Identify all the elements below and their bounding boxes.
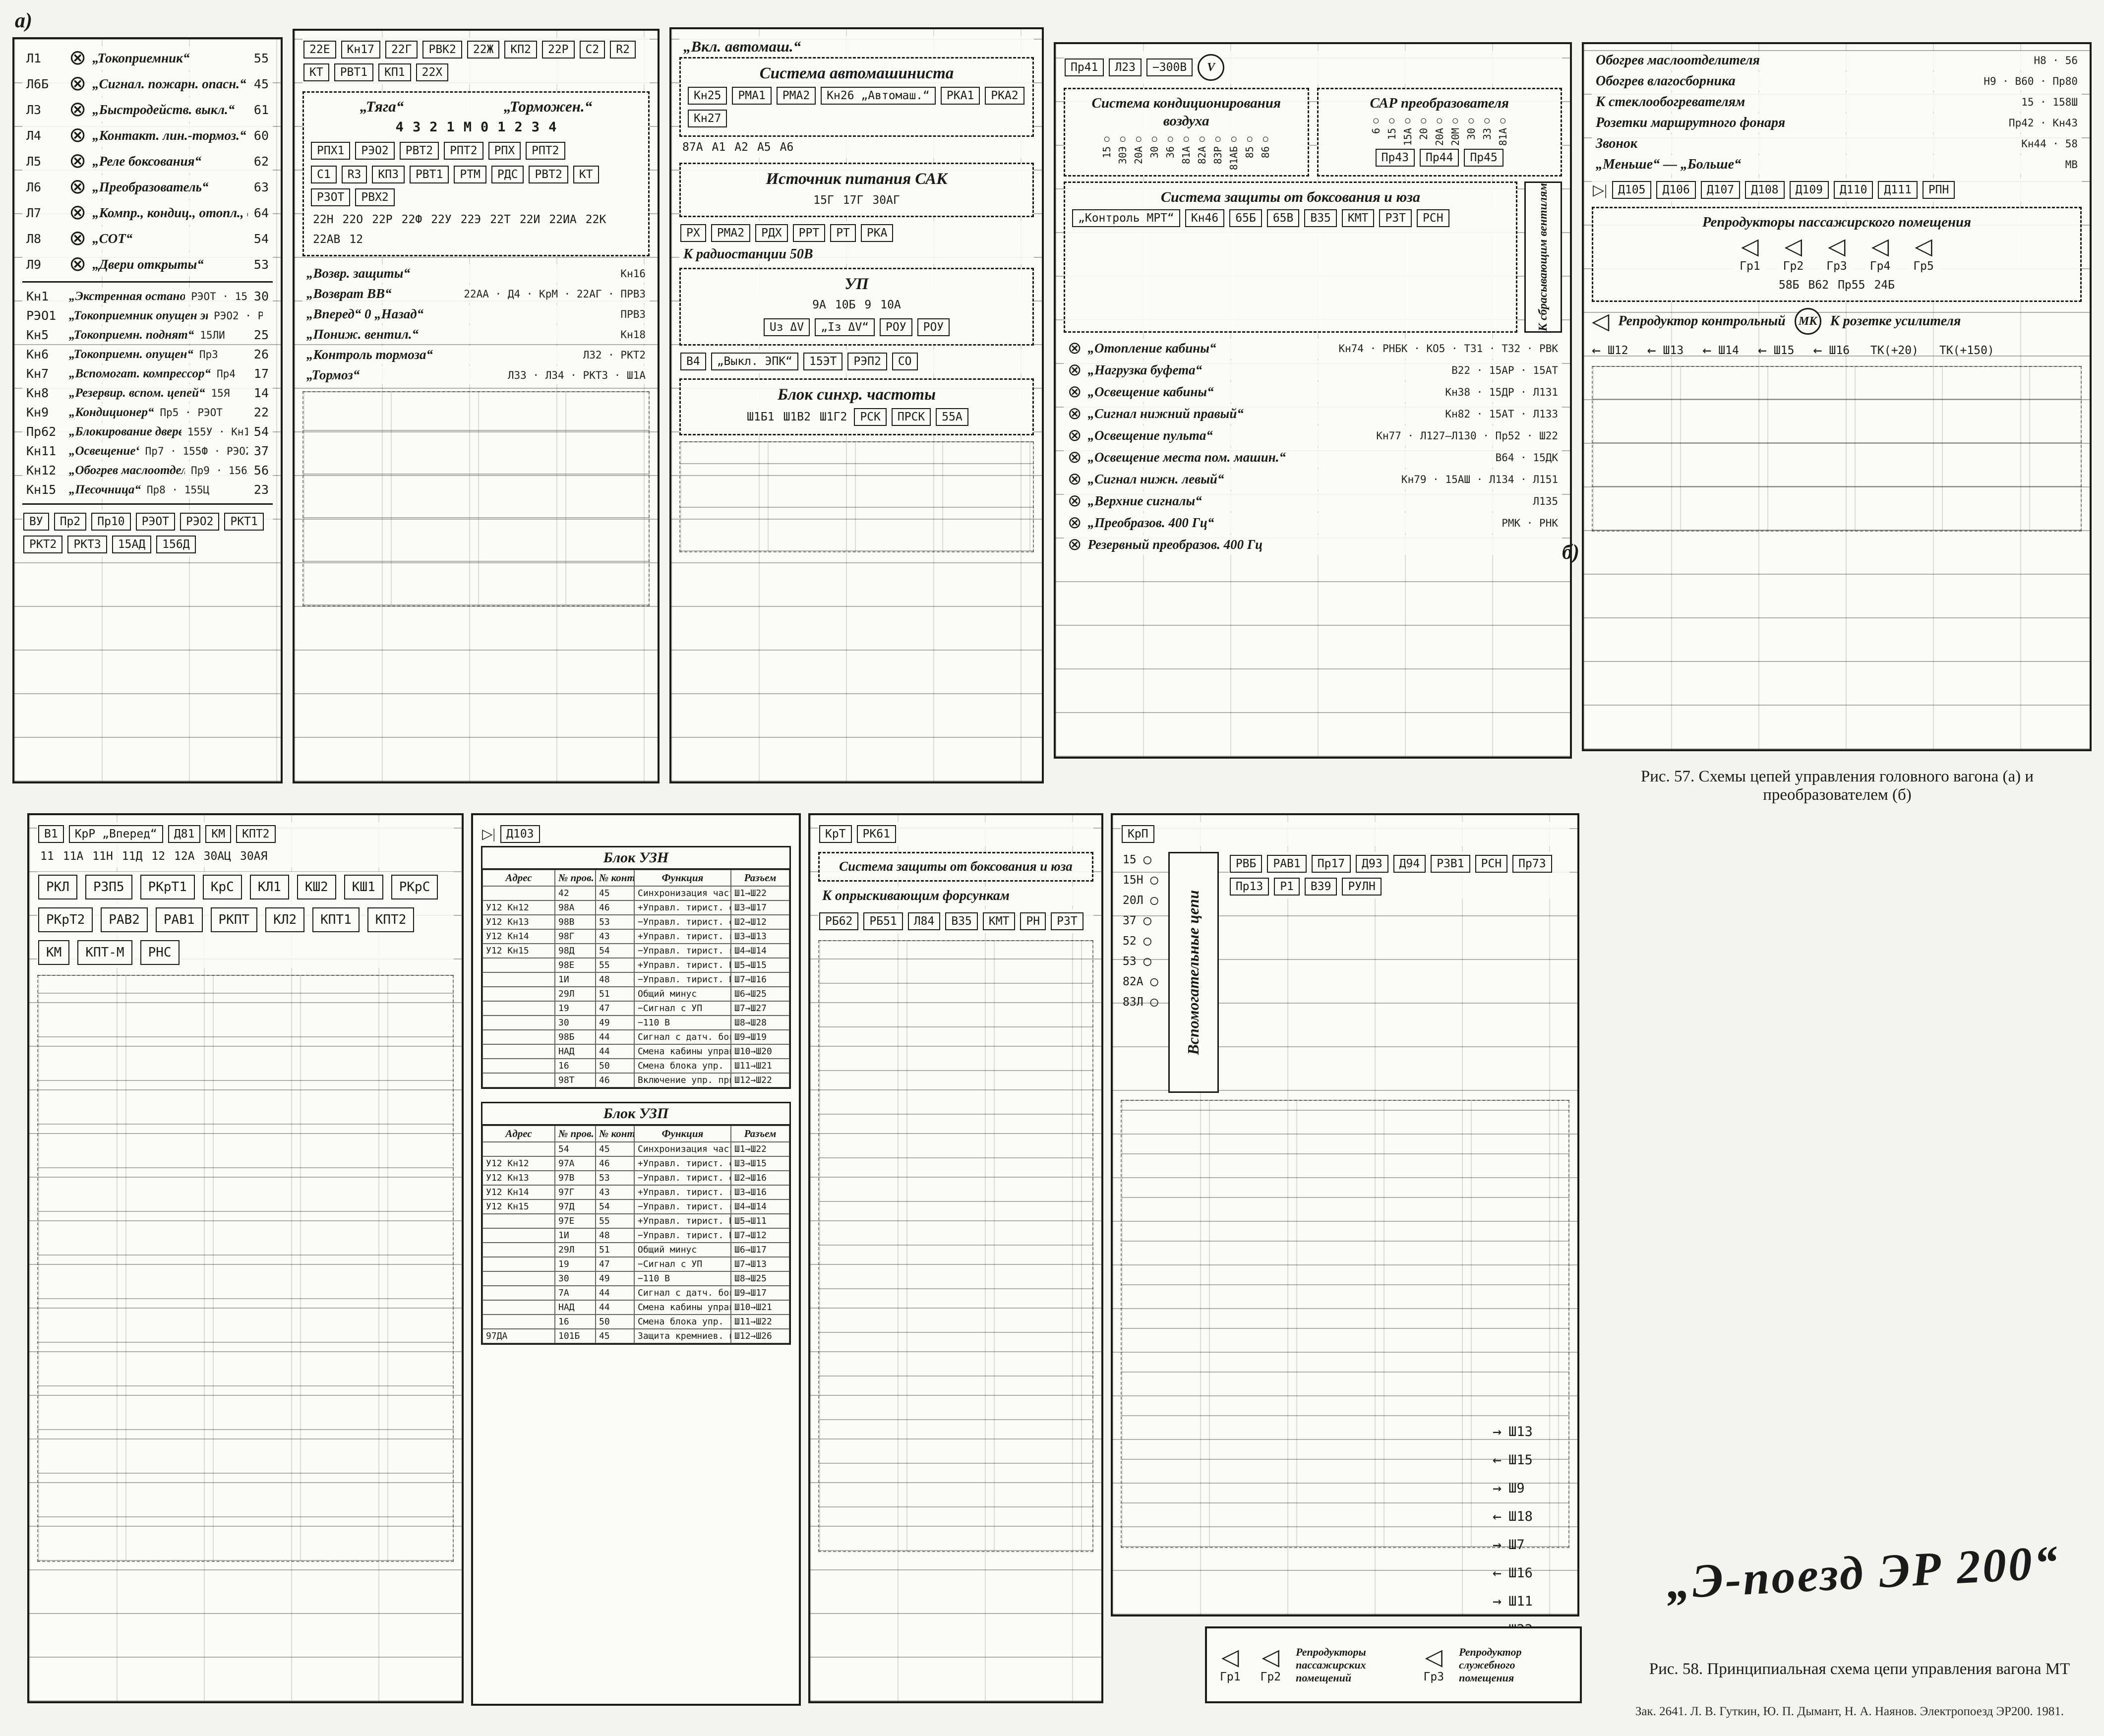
terminal: ○30Э	[1117, 133, 1129, 170]
component-chip: R3	[342, 166, 367, 183]
component-chip: Кн17	[341, 41, 380, 59]
table-cell: Ш7→Ш16	[731, 972, 789, 987]
table-cell: 29Л	[555, 1243, 596, 1257]
automation-title: Система автомашиниста	[687, 63, 1026, 84]
component-chip: РКТ3	[67, 536, 107, 553]
lamp-icon: ⊗	[1068, 515, 1082, 532]
table-cell	[482, 1001, 555, 1016]
wire-tag: 22Э	[459, 212, 483, 227]
table-cell: 30	[555, 1271, 596, 1286]
speakers-group2-title: Репродуктор служебного помещения	[1459, 1646, 1572, 1684]
table-cell: Ш9→Ш17	[731, 1286, 789, 1300]
component-chip: СО	[892, 353, 918, 370]
table-cell: 53	[596, 915, 634, 929]
table-cell	[482, 1315, 555, 1329]
contact-chip: РЭО2	[355, 142, 394, 160]
wire-tag: 11Д	[120, 849, 145, 864]
relay-chip: КШ1	[344, 875, 383, 899]
terminal-dot: ○	[1404, 115, 1412, 127]
table-cell: 48	[596, 1228, 634, 1243]
arrow-icon: ←	[1813, 342, 1822, 359]
terminal: ○6	[1370, 115, 1382, 146]
controller-position: 3	[411, 119, 422, 136]
relay-chip: РАВ2	[101, 907, 148, 932]
table-cell: У12 Кн14	[482, 1185, 555, 1199]
terminal-dot: ○	[1452, 115, 1459, 127]
diode-chip: Д109	[1790, 181, 1829, 199]
table-cell: У12 Кн14	[482, 929, 555, 944]
conditioning-box: Система кондиционирования воздуха ○15 ○3…	[1064, 88, 1309, 177]
component-chip: РХ	[680, 224, 706, 242]
fuse-chip: Пр43	[1376, 149, 1415, 167]
table-cell: Ш4→Ш14	[731, 944, 789, 958]
table-cell: 50	[596, 1315, 634, 1329]
table-cell: 98Г	[555, 929, 596, 944]
wire-tag: 12	[347, 232, 365, 247]
component-chip: С1	[311, 166, 337, 183]
mt-speakers: ◁ Гр1 ◁ Гр2 Репродукторы пассажирских по…	[1205, 1626, 1582, 1703]
table-cell: −Управл. тирист. гаш.	[634, 1199, 731, 1214]
table-cell: −Сигнал с УП	[634, 1257, 731, 1271]
table-cell: Ш4→Ш14	[731, 1199, 789, 1214]
switch-row: Кн9 „Кондиционер“ Пр5 · РЭОТ 22	[22, 404, 273, 421]
table-cell: Смена блока упр. (рез.)	[634, 1315, 731, 1329]
table-cell: 49	[596, 1016, 634, 1030]
lamp-icon: ⊗	[69, 99, 86, 120]
wire-tag: 24Б	[1872, 278, 1897, 293]
relay-chip: РЗП5	[85, 875, 132, 899]
lamp-icon: ⊗	[69, 228, 86, 249]
terminal: ○15	[1386, 115, 1398, 146]
wire-tag: 22Р	[370, 212, 395, 227]
relay-chip: КПТ2	[367, 907, 415, 932]
wire-tags: 11 11А 11Н 11Д 12 12А 30АЦ 30АЯ	[37, 846, 454, 867]
lamp-row: Л4 ⊗ „Контакт. лин.-тормоз.“ 60	[22, 123, 273, 147]
component-chip: 22Е	[303, 41, 336, 59]
switch-row: Пр62 „Блокирование дверей“ 155У · Кн10 5…	[22, 423, 273, 440]
wire-tag: А6	[778, 140, 796, 155]
speaker: ◁ Гр4	[1865, 234, 1896, 275]
component-chip: 15ЭТ	[803, 353, 842, 370]
lamp-row: Л7 ⊗ „Компр., кондиц., отопл., вентиляц.…	[22, 201, 273, 225]
terminal-row: 53○	[1121, 954, 1158, 969]
circuit-row: „Возвр. защиты“ Кн16	[302, 264, 650, 283]
component-chip: 22Г	[385, 41, 418, 59]
terminal-dot: ○	[1436, 115, 1443, 127]
table-cell: 97А	[555, 1156, 596, 1171]
table-cell: Ш2→Ш16	[731, 1171, 789, 1185]
terminal-dot: ○	[1500, 115, 1507, 127]
contact-chip: РПХ	[488, 142, 521, 160]
diode-chip: Д111	[1878, 181, 1917, 199]
braking-title: „Торможен.“	[504, 98, 593, 116]
table-cell: +Управл. тирист. гаш.	[634, 1185, 731, 1199]
speakers-group1-title: Репродукторы пассажирских помещений	[1296, 1646, 1403, 1684]
table-cell: НАД	[555, 1044, 596, 1059]
lamp-row: Л5 ⊗ „Реле боксования“ 62	[22, 149, 273, 173]
relay-fuse-chips: ВУ Пр2 Пр10 РЭОТ РЭО2 РКТ1 РКТ2 РКТ3 15А…	[22, 510, 273, 556]
table2: Адрес № пров. № конт. Функция Разъем 54 …	[481, 1124, 791, 1345]
contact-chip: РВТ2	[400, 142, 439, 160]
wire-tag: 22ИА	[547, 212, 578, 227]
relay-chip: КМ	[38, 940, 69, 965]
table-cell: У12 Кн13	[482, 1171, 555, 1185]
component-chip: РКА	[861, 224, 894, 242]
table-cell: 19	[555, 1001, 596, 1016]
wire-tag: 58Б	[1777, 278, 1802, 293]
terminal-dot: ○	[1199, 133, 1206, 145]
component-chip: Л23	[1109, 59, 1142, 76]
terminal-dot: ○	[1246, 133, 1254, 145]
panel-traction-relays: В1 КрР „Вперед“ Д81 КМ КПТ2 11 11А 11Н 1…	[27, 813, 464, 1703]
component-chip: Кн25	[688, 87, 727, 105]
table-cell: 42	[555, 886, 596, 900]
component-chip: Д93	[1356, 855, 1388, 873]
connector-output: ← Ш18	[1493, 1508, 1535, 1525]
controller-positions: 4 3 2 1 М 0 1 2 3 4	[310, 116, 642, 139]
table-cell: 54	[596, 944, 634, 958]
connector-tag: ←Ш12	[1592, 342, 1630, 359]
controller-position: М	[462, 119, 474, 136]
component-chip: РВК2	[422, 41, 462, 59]
component-chip: РВБ	[1230, 855, 1262, 873]
wire-tag: 17Г	[841, 193, 866, 208]
table-cell: 45	[596, 1142, 634, 1156]
arrow-icon: →	[1493, 1593, 1502, 1610]
component-chip: КП1	[378, 63, 411, 81]
table-header-cell: Функция	[634, 1126, 731, 1142]
lighting-row: ⊗ „Освещение места пом. машин.“ В64 · 15…	[1064, 448, 1562, 468]
lamp-icon: ⊗	[69, 151, 86, 172]
component-chip: РЗТ	[1051, 912, 1083, 930]
table-cell: 46	[596, 1073, 634, 1087]
component-chip: КрР „Вперед“	[69, 825, 163, 843]
lighting-row: ⊗ „Верхние сигналы“ Л135	[1064, 491, 1562, 511]
component-chip: Пр73	[1512, 855, 1552, 873]
table-cell: Ш8→Ш28	[731, 1016, 789, 1030]
up-box: УП 9А 10Б 9 10А Uз ΔV „Iз ΔV“ РОУ	[679, 268, 1034, 346]
speaker: ◁ Гр3	[1821, 234, 1852, 275]
table-cell: 51	[596, 1243, 634, 1257]
component-chip: Пр2	[54, 513, 87, 531]
amp-socket-note: К розетке усилителя	[1830, 313, 1961, 329]
wire-tag: 11	[38, 849, 56, 864]
table-cell: Ш7→Ш12	[731, 1228, 789, 1243]
table-cell: 44	[596, 1044, 634, 1059]
arrow-icon: →	[1493, 1480, 1502, 1497]
switch-row: Кн15 „Песочница“ Пр8 · 155Ц 23	[22, 481, 273, 498]
relay-chip: КШ2	[297, 875, 336, 899]
table-cell: Ш10→Ш21	[731, 1300, 789, 1315]
component-chip: Кн46	[1185, 209, 1224, 227]
speaker-icon: ◁	[1828, 235, 1845, 258]
component-chip: РК61	[857, 825, 896, 843]
table-cell	[482, 1214, 555, 1228]
component-chip: −300В	[1146, 59, 1193, 76]
component-chip: Пр10	[91, 513, 130, 531]
terminal: ○20А	[1434, 115, 1445, 146]
table-cell: 44	[596, 1030, 634, 1044]
table-cell: 47	[596, 1001, 634, 1016]
arrow-icon: ←	[1493, 1564, 1502, 1582]
sar-box: САР преобразователя ○6 ○15 ○15А ○20 ○20А…	[1317, 88, 1563, 177]
table-cell: −Управл. тирист. КрБ	[634, 972, 731, 987]
component-chip: РСК	[854, 408, 887, 426]
lamp-icon: ⊗	[1068, 362, 1082, 379]
table-header-cell: Адрес	[482, 1126, 555, 1142]
relay-chip: КЛ1	[250, 875, 289, 899]
table-cell: Ш9→Ш19	[731, 1030, 789, 1044]
arrow-icon: ←	[1592, 342, 1601, 359]
wire-tag: 87А	[680, 140, 705, 155]
terminal-dot: ○	[1183, 133, 1190, 145]
lighting-row: ⊗ „Отопление кабины“ Кн74 · РНБК · КО5 ·…	[1064, 339, 1562, 359]
wire-tag: В62	[1806, 278, 1831, 293]
terminal-dot: ○	[1150, 974, 1158, 989]
table-cell: Ш1→Ш22	[731, 886, 789, 900]
pin-tag: 9	[862, 298, 873, 312]
controller-position: 0	[479, 119, 490, 136]
table-cell: −Управл. тирист. отпир.	[634, 915, 731, 929]
component-chip: РБ51	[863, 912, 902, 930]
table-header-cell: Функция	[634, 870, 731, 886]
relay-chip: РКрТ2	[38, 907, 93, 932]
table-cell: 46	[596, 1156, 634, 1171]
terminal: ○15	[1101, 133, 1113, 170]
terminal-row: 15Н○	[1121, 872, 1158, 888]
table-cell: 55	[596, 958, 634, 972]
terminal-dot: ○	[1143, 852, 1151, 867]
table-cell: 30	[555, 1016, 596, 1030]
table-cell: 47	[596, 1257, 634, 1271]
component-chip: КМТ	[983, 912, 1016, 930]
connector-tag: ←Ш15	[1758, 342, 1797, 359]
component-chip: Л84	[908, 912, 941, 930]
connector-output: → Ш7	[1493, 1536, 1535, 1554]
speaker-icon: ◁	[1915, 235, 1932, 258]
terminal-dot: ○	[1230, 133, 1238, 145]
sync-box: Блок синхр. частоты Ш1Б1 Ш1В2 Ш1Г2 РСК П…	[679, 378, 1034, 435]
speaker: ◁ Гр5	[1908, 234, 1939, 275]
heater-row: Звонок Кн44 · 58	[1592, 134, 2082, 153]
table-cell	[482, 958, 555, 972]
lamp-icon: ⊗	[1068, 384, 1082, 401]
terminal-dot: ○	[1135, 133, 1142, 145]
component-chip: РТМ	[454, 166, 486, 183]
nozzles-note: К опрыскивающим форсункам	[822, 888, 1010, 904]
table-cell: Ш2→Ш12	[731, 915, 789, 929]
components: РБ62 РБ51 Л84 В35 КМТ РН РЗТ	[818, 909, 1093, 933]
table-cell: Ш1→Ш22	[731, 1142, 789, 1156]
table-cell: 50	[596, 1059, 634, 1073]
lamp-icon: ⊗	[1068, 471, 1082, 488]
handwritten-note: „Э-поезд ЭР 200“	[1665, 1534, 2061, 1610]
component-chip: РРТ	[793, 224, 826, 242]
speaker: ◁ Гр3	[1419, 1645, 1449, 1685]
table-cell: −Управл. тирист. КрБ	[634, 1228, 731, 1243]
table-cell: У12 Кн12	[482, 900, 555, 915]
component-chip: КМТ	[1342, 209, 1375, 227]
protection-chips: 22Е Кн17 22Г РВК2 22Ж КП2 22Р С2 R2 КТ Р…	[302, 38, 650, 84]
table-cell: −Управл. тирист. отпир.	[634, 1171, 731, 1185]
table-cell: 19	[555, 1257, 596, 1271]
fuse-chip: Пр45	[1464, 149, 1503, 167]
panel-head-car-signals: Л1 ⊗ „Токоприемник“ 55 Л6Б ⊗ „Сигнал. по…	[12, 37, 283, 783]
voltmeter-icon: V	[1198, 54, 1224, 81]
component-chip: КТ	[303, 63, 329, 81]
table-cell: 49	[596, 1271, 634, 1286]
lighting-row: ⊗ „Сигнал нижний правый“ Кн82 · 15АТ · Л…	[1064, 404, 1562, 424]
table-cell	[482, 1257, 555, 1271]
table-cell: Сигнал с датч. боксов.	[634, 1030, 731, 1044]
component-chip: Пр13	[1230, 878, 1269, 896]
arrow-icon: ←	[1493, 1508, 1502, 1525]
table-cell	[482, 1142, 555, 1156]
switch-row: Кн8 „Резервир. вспом. цепей“ 15Я 14	[22, 384, 273, 402]
lighting-row: ⊗ „Освещение кабины“ Кн38 · 15ДР · Л131	[1064, 382, 1562, 402]
table-cell: 97Д	[555, 1199, 596, 1214]
diode-chip: Д107	[1701, 181, 1740, 199]
terminal-dot: ○	[1143, 913, 1151, 928]
table-cell: −110 В	[634, 1016, 731, 1030]
terminal-row: 82А○	[1121, 974, 1158, 989]
terminal: ○30	[1148, 133, 1160, 170]
terminal: ○81А	[1497, 115, 1509, 146]
controller-wires: 22Н 22О 22Р 22Ф 22У 22Э 22Т 22И 22ИА	[310, 209, 642, 250]
wire-tag: А1	[710, 140, 728, 155]
relay-chip: РКрС	[391, 875, 438, 899]
lamp-row: Л9 ⊗ „Двери открыты“ 53	[22, 252, 273, 276]
signal-chip: „Iз ΔV“	[815, 318, 875, 336]
controller-kv: „Тяга“ „Торможен.“ 4 3 2 1 М 0 1	[302, 91, 650, 256]
lamp-icon: ⊗	[1068, 537, 1082, 553]
port-tag: Ш1Г2	[818, 410, 849, 424]
component-chip: РЭП2	[847, 353, 887, 370]
table-cell	[482, 1059, 555, 1073]
dense-wiring-area	[818, 940, 1093, 1552]
component-chip: Пр41	[1065, 59, 1104, 76]
table-cell: 98Е	[555, 958, 596, 972]
top-fuse-row: Пр41 Л23 −300В V	[1064, 51, 1562, 84]
automation-inlet-label: „Вкл. автомаш.“	[683, 38, 801, 56]
component-chip: В39	[1305, 878, 1337, 896]
diode-chip: РПН	[1923, 181, 1955, 199]
component-chip: КП2	[504, 41, 537, 59]
component-chip: Пр17	[1312, 855, 1351, 873]
release-valves-note: К сбрасывающим вентилям	[1524, 181, 1562, 333]
table-cell: +Управл. тирист. КрБ	[634, 958, 731, 972]
table-cell: Ш8→Ш25	[731, 1271, 789, 1286]
component-chip: „Контроль МРТ“	[1072, 209, 1180, 227]
wire-tag: 30АЦ	[202, 849, 233, 864]
table-cell: Защита кремниев. прибор.	[634, 1329, 731, 1343]
terminal-dot: ○	[1143, 954, 1151, 969]
lamp-icon: ⊗	[69, 202, 86, 223]
terminal-dot: ○	[1262, 133, 1269, 145]
terminal: ○30	[1465, 115, 1477, 146]
lamp-row: Л6 ⊗ „Преобразователь“ 63	[22, 175, 273, 199]
controller-position: 2	[427, 119, 439, 136]
connector-tag: ←Ш13	[1647, 342, 1686, 359]
terminal-row: 83Л○	[1121, 994, 1158, 1010]
arrow-icon: →	[1493, 1536, 1502, 1554]
table-cell: +Управл. тирист. отпир.	[634, 1156, 731, 1171]
circuit-row: „Пониж. вентил.“ Кн18	[302, 325, 650, 344]
lamp-icon: ⊗	[69, 254, 86, 275]
component-chip: Д94	[1393, 855, 1426, 873]
pin-tag: 10Б	[833, 298, 858, 312]
connector-output: → Ш13	[1493, 1423, 1535, 1440]
terminal-dot: ○	[1150, 994, 1158, 1010]
diode-chip: Д105	[1612, 181, 1651, 199]
traction-title: „Тяга“	[360, 98, 404, 116]
relay-chip: КЛ2	[265, 907, 304, 932]
relay-chip: КрС	[203, 875, 242, 899]
component-chip: 65Б	[1229, 209, 1262, 227]
controller-position: 3	[530, 119, 541, 136]
component-chip: 156Д	[156, 536, 195, 553]
component-chip: РМА1	[732, 87, 771, 105]
table-cell: У12 Кн15	[482, 944, 555, 958]
switch-row: Кн6 „Токоприемн. опущен“ Пр3 26	[22, 346, 273, 363]
controller-position: 4	[546, 119, 558, 136]
connector-tag: ←Ш16	[1813, 342, 1852, 359]
switch-row: Кн12 „Обогрев маслоотдел.“ Пр9 · 156Х 56	[22, 462, 273, 479]
table-cell: 98Б	[555, 1030, 596, 1044]
table-header-cell: Разъем	[731, 870, 789, 886]
table-cell: 44	[596, 1300, 634, 1315]
terminal-dot: ○	[1420, 115, 1428, 127]
terminal: ○82А	[1196, 133, 1208, 170]
tk-tag: ТК(+150)	[1937, 343, 1996, 358]
wire-tag: 22Ф	[400, 212, 424, 227]
table-header-cell: Разъем	[731, 1126, 789, 1142]
panel-mt-protection: КрТ РК61 Система защиты от боксования и …	[808, 813, 1103, 1703]
table-cell: Ш6→Ш25	[731, 987, 789, 1001]
connector-tag: ←Ш14	[1702, 342, 1741, 359]
component-chip: РУЛН	[1342, 878, 1381, 896]
speakers-box: Репродукторы пассажирского помещения ◁ Г…	[1592, 207, 2082, 302]
component-chip: РКТ1	[224, 513, 263, 531]
switch-row: Кн1 „Экстренная остановка“ РЭОТ · 15БР 3…	[22, 288, 273, 305]
controller-position: 2	[513, 119, 525, 136]
panel-systems-head-car: Пр41 Л23 −300В V Система кондиционирован…	[1054, 42, 1572, 759]
component-chip: РЗВ1	[1431, 855, 1470, 873]
table-cell: У12 Кн13	[482, 915, 555, 929]
table-cell: 48	[596, 972, 634, 987]
switch-row: Кн7 „Вспомогат. компрессор“ Пр4 17	[22, 365, 273, 382]
table-header-cell: № пров.	[555, 1126, 596, 1142]
fuse-chip: Пр44	[1420, 149, 1459, 167]
table-cell: 46	[596, 900, 634, 915]
table-cell	[482, 886, 555, 900]
top-diode-row: ▷| Д103	[481, 822, 791, 846]
lamp-icon: ⊗	[1068, 406, 1082, 422]
header-components: В1 КрР „Вперед“ Д81 КМ КПТ2	[37, 822, 454, 846]
speaker: ◁ Гр1	[1215, 1645, 1246, 1685]
component-chip: 22Р	[542, 41, 575, 59]
table-cell: Ш3→Ш17	[731, 900, 789, 915]
aux-top-anchor	[1765, 15, 1974, 35]
component-chip: КМ	[205, 825, 231, 843]
table-cell: У12 Кн15	[482, 1199, 555, 1214]
terminal-dot: ○	[1151, 133, 1158, 145]
contact-chip: РПТ2	[526, 142, 565, 160]
lighting-row: ⊗ „Преобразов. 400 Гц“ РМК · РНК	[1064, 513, 1562, 533]
component-chip: В1	[38, 825, 64, 843]
component-chip: РКТ2	[23, 536, 62, 553]
table-cell: −Управл. тирист. гаш.	[634, 944, 731, 958]
